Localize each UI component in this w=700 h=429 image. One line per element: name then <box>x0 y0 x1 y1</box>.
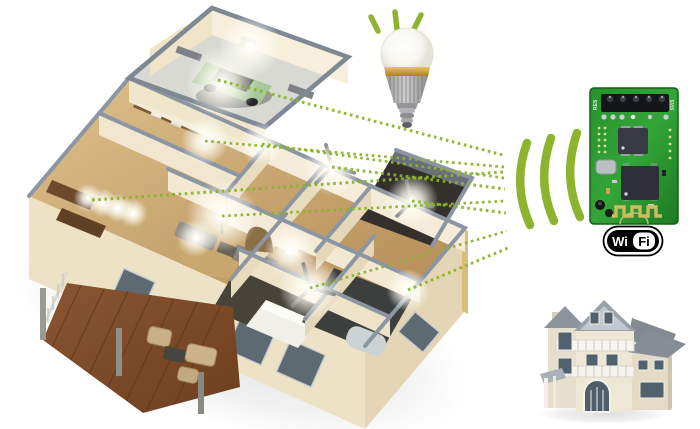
light-core <box>287 249 294 256</box>
villa-window <box>654 360 664 370</box>
villa-illustration <box>540 300 686 412</box>
villa-wing-side <box>668 356 672 410</box>
light-core <box>131 211 135 215</box>
wifi-signal-arc <box>570 133 580 217</box>
bulb-screw-base <box>399 108 415 128</box>
pcb-soic-chip <box>618 126 648 156</box>
wifi-signal-arc <box>520 143 530 225</box>
light-garage-2 <box>186 46 258 118</box>
chip-pin1-dot <box>624 192 627 195</box>
villa-window <box>586 354 598 366</box>
bulb-glow-ray <box>395 12 397 29</box>
pcb-capacitor <box>605 209 613 217</box>
bulb-gold-band <box>384 67 430 77</box>
pcb-crystal <box>596 160 616 174</box>
wifi-signal-arcs <box>520 133 580 225</box>
pcb-silk-text-left: RES <box>593 99 599 110</box>
villa-window <box>606 354 618 366</box>
bulb-contact-tip <box>402 122 412 128</box>
wifi-logo-badge: Wi Fi <box>604 227 663 256</box>
pcb-pin-header <box>601 94 669 112</box>
villa-porch-post <box>544 378 548 408</box>
smart-home-wifi-lighting-illustration: RES 5V/3 Wi Fi <box>0 0 700 429</box>
villa-porch-post <box>553 376 556 408</box>
pcb-main-chip <box>621 163 659 201</box>
light-closet-4 <box>119 199 148 228</box>
light-core <box>246 42 254 50</box>
wifi-signal-arc <box>544 138 554 221</box>
villa-window <box>604 312 613 324</box>
wifi-logo-fi: Fi <box>638 234 650 249</box>
villa-window <box>638 360 648 370</box>
wifi-logo-wi: Wi <box>612 234 628 249</box>
scene-canvas: RES 5V/3 Wi Fi <box>0 0 700 429</box>
pcb-capacitor-top <box>598 202 602 206</box>
chip-pin1-dot <box>621 146 624 149</box>
led-bulb <box>363 10 451 128</box>
villa-window <box>590 312 599 324</box>
villa-window <box>640 382 664 398</box>
deck-post <box>198 372 204 414</box>
villa-arched-window <box>584 380 610 412</box>
wifi-module-pcb: RES 5V/3 <box>590 88 678 224</box>
pcb-silk-text-right: 5V/3 <box>670 99 676 110</box>
deck-post <box>116 328 122 376</box>
villa-tower-roof <box>544 306 586 328</box>
deck-post <box>40 288 46 340</box>
villa-window <box>558 332 572 350</box>
